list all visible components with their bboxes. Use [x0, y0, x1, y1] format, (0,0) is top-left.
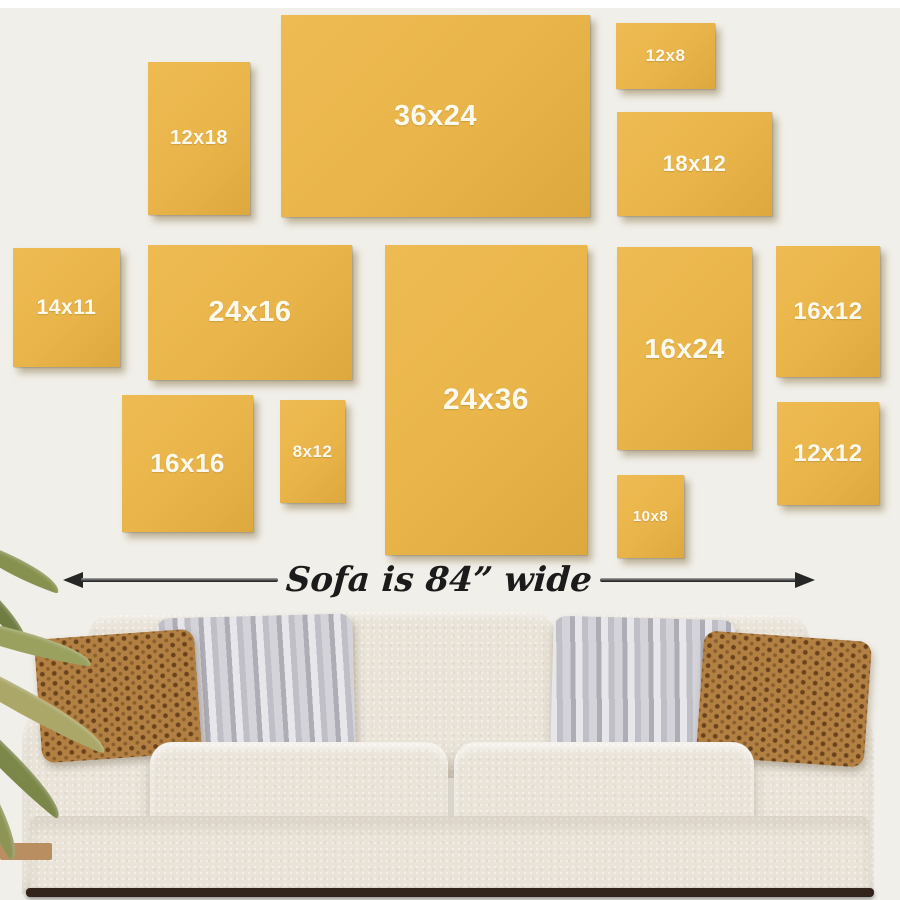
canvas-size-label: 12x18: [170, 127, 228, 150]
sofa-width-dimension: Sofa is 84” wide: [63, 556, 815, 604]
canvas-print-36x24: 36x24: [281, 15, 590, 217]
canvas-print-14x11: 14x11: [13, 248, 120, 367]
sofa-base-skirt: [30, 816, 870, 894]
canvas-print-12x8: 12x8: [616, 23, 715, 89]
dimension-line-left: [81, 578, 278, 582]
canvas-size-label: 12x8: [646, 46, 686, 66]
canvas-print-16x16: 16x16: [122, 395, 253, 532]
canvas-print-18x12: 18x12: [617, 112, 772, 216]
canvas-size-label: 14x11: [37, 296, 97, 320]
canvas-print-12x12: 12x12: [777, 402, 879, 505]
canvas-size-label: 16x12: [793, 298, 862, 326]
canvas-size-guide-scene: 12x18 36x24 12x8 18x12 14x11 24x16 16x24…: [0, 0, 900, 900]
canvas-size-label: 18x12: [663, 151, 727, 177]
canvas-size-label: 36x24: [394, 100, 477, 133]
canvas-size-label: 16x16: [150, 448, 225, 479]
canvas-size-label: 16x24: [644, 333, 724, 365]
canvas-print-16x24: 16x24: [617, 247, 752, 450]
floor-shadow: [26, 888, 874, 897]
plant-leaf: [0, 541, 65, 594]
canvas-size-label: 24x16: [208, 296, 291, 329]
canvas-print-24x36: 24x36: [385, 245, 587, 555]
dimension-caption: Sofa is 84” wide: [277, 563, 601, 597]
top-white-strip: [0, 0, 900, 8]
arrow-right-icon: [795, 572, 815, 588]
canvas-print-16x12: 16x12: [776, 246, 880, 377]
canvas-size-label: 10x8: [633, 508, 668, 525]
canvas-size-label: 8x12: [293, 442, 333, 462]
canvas-size-label: 24x36: [443, 383, 529, 417]
dimension-line-right: [600, 578, 797, 582]
canvas-size-label: 12x12: [793, 440, 862, 468]
canvas-print-24x16: 24x16: [148, 245, 352, 380]
canvas-print-8x12: 8x12: [280, 400, 345, 503]
canvas-print-12x18: 12x18: [148, 62, 250, 215]
arrow-left-icon: [63, 572, 83, 588]
canvas-print-10x8: 10x8: [617, 475, 684, 558]
